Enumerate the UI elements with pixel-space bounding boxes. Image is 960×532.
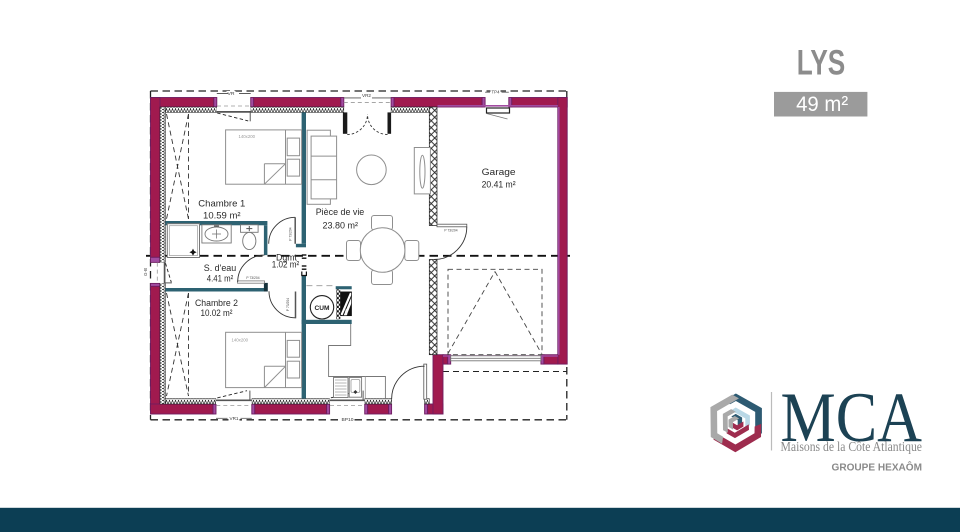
svg-text:GROUPE HEXAÔM: GROUPE HEXAÔM bbox=[832, 461, 923, 474]
svg-text:VR: VR bbox=[228, 91, 235, 96]
svg-text:TP4: TP4 bbox=[492, 90, 501, 95]
svg-text:S. d'eau: S. d'eau bbox=[204, 263, 237, 273]
svg-text:Chambre 2: Chambre 2 bbox=[195, 298, 238, 308]
svg-text:Pièce de vie: Pièce de vie bbox=[316, 207, 365, 217]
svg-text:P 73/204: P 73/204 bbox=[246, 276, 259, 280]
svg-text:49 m²: 49 m² bbox=[796, 93, 848, 116]
svg-text:Maisons de la Côte Atlantique: Maisons de la Côte Atlantique bbox=[781, 439, 923, 454]
svg-text:4.41 m²: 4.41 m² bbox=[207, 273, 234, 283]
svg-text:P 73/204: P 73/204 bbox=[288, 227, 292, 240]
svg-text:VR2: VR2 bbox=[362, 93, 372, 98]
svg-text:23.80 m²: 23.80 m² bbox=[323, 220, 359, 230]
svg-text:20.41 m²: 20.41 m² bbox=[482, 180, 516, 190]
svg-text:10.59 m²: 10.59 m² bbox=[203, 210, 241, 220]
svg-text:VR1: VR1 bbox=[230, 416, 240, 421]
svg-text:BP10: BP10 bbox=[342, 417, 355, 422]
svg-text:Chambre 1: Chambre 1 bbox=[198, 199, 245, 209]
svg-text:Garage: Garage bbox=[482, 167, 516, 177]
svg-text:LYS: LYS bbox=[797, 44, 846, 83]
svg-text:P 73/204: P 73/204 bbox=[286, 298, 290, 311]
svg-text:CUM: CUM bbox=[315, 305, 330, 312]
svg-text:140x200: 140x200 bbox=[232, 337, 249, 342]
svg-text:140x200: 140x200 bbox=[239, 134, 256, 139]
svg-text:G-B: G-B bbox=[143, 268, 148, 276]
svg-text:P 73/204: P 73/204 bbox=[444, 229, 457, 233]
svg-text:REF: REF bbox=[345, 309, 349, 315]
svg-text:1.02 m²: 1.02 m² bbox=[272, 260, 300, 270]
svg-text:10.02 m²: 10.02 m² bbox=[201, 308, 233, 318]
